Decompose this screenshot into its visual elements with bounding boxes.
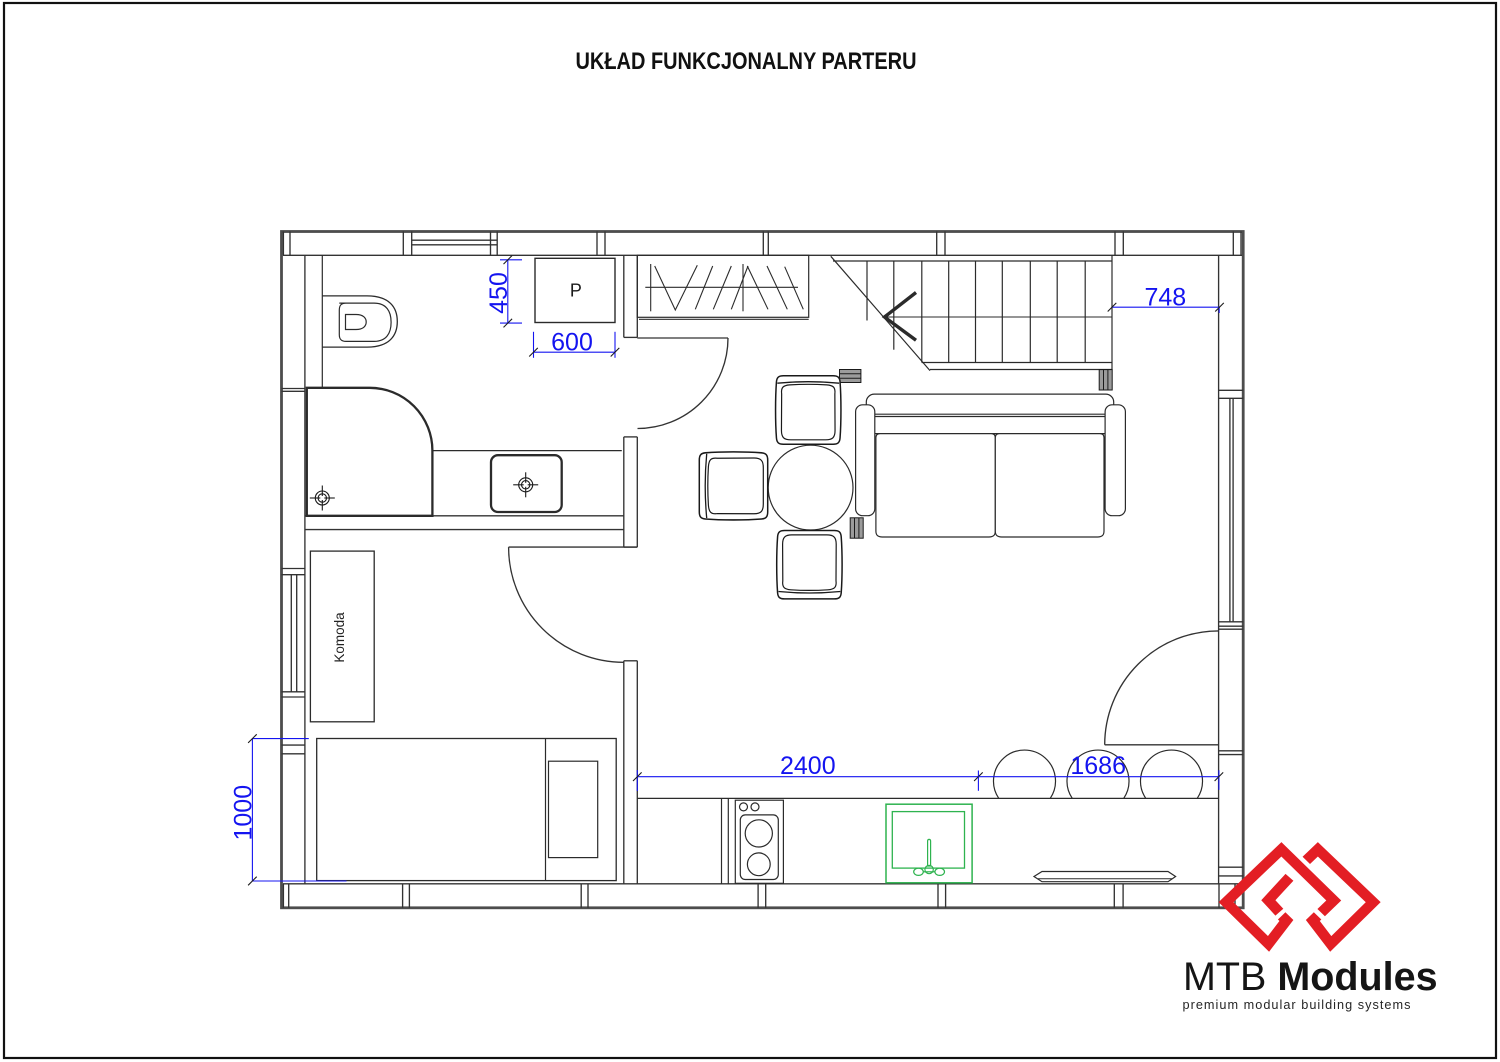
- svg-text:Komoda: Komoda: [332, 612, 347, 663]
- svg-text:MTB Modules: MTB Modules: [1183, 955, 1438, 999]
- svg-text:748: 748: [1144, 283, 1186, 311]
- svg-text:UKŁAD FUNKCJONALNY PARTERU: UKŁAD FUNKCJONALNY PARTERU: [576, 48, 917, 75]
- svg-text:1000: 1000: [230, 785, 258, 841]
- svg-text:premium modular building syste: premium modular building systems: [1183, 998, 1412, 1012]
- svg-text:1686: 1686: [1070, 752, 1126, 780]
- svg-text:P: P: [570, 281, 582, 301]
- svg-text:600: 600: [551, 328, 593, 356]
- svg-text:2400: 2400: [780, 752, 836, 780]
- svg-text:450: 450: [485, 272, 513, 314]
